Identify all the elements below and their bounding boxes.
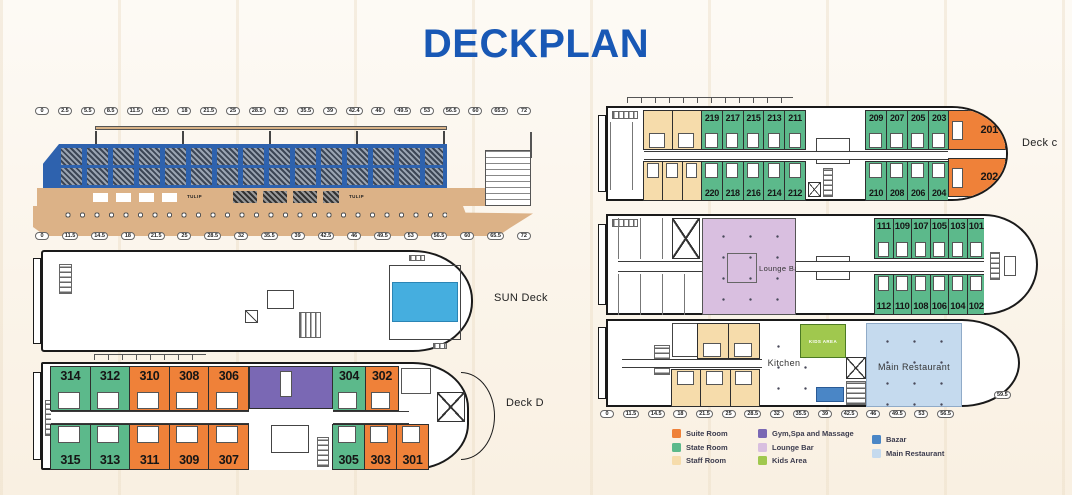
room-number: 218 — [723, 188, 743, 198]
scale-marker: 53 — [914, 410, 928, 418]
scale-marker: 53 — [420, 107, 434, 115]
room-number: 103 — [949, 221, 967, 232]
room-number: 105 — [931, 221, 949, 232]
room-313: 313 — [90, 424, 131, 470]
legend-item: Suite Room — [672, 427, 758, 441]
room-310: 310 — [129, 366, 170, 411]
deck-b-outline: Lounge Bar 111109107105103101 1121101081… — [606, 214, 984, 315]
room-303: 303 — [364, 424, 397, 470]
room-110: 110 — [893, 274, 913, 315]
stairs-icon — [846, 381, 866, 405]
elevator-icon — [846, 357, 866, 379]
window-row — [61, 168, 443, 185]
scale-marker: 8.5 — [104, 107, 118, 115]
scale-marker: 46 — [371, 107, 385, 115]
room-304: 304 — [332, 366, 366, 411]
portholes — [61, 209, 447, 221]
scale-marker: 72 — [517, 232, 531, 240]
room-number: 101 — [968, 221, 986, 232]
page-title: DECKPLAN — [0, 22, 1072, 67]
room-staff — [643, 161, 663, 201]
scale-marker: 39 — [291, 232, 305, 240]
scale-marker: 60 — [468, 107, 482, 115]
room-staff — [730, 369, 760, 407]
room-number: 302 — [366, 369, 398, 383]
lounge-bar-area: Lounge Bar — [702, 218, 796, 315]
deck-windows — [93, 193, 183, 202]
deck-d-label: Deck D — [506, 397, 544, 409]
scale-marker: 11.5 — [127, 107, 143, 115]
lifeboat-icon — [612, 111, 638, 119]
deck-c-plan: 219217215213211 209207205203 22021821621… — [598, 106, 1018, 201]
ship-side-view: 02.55.58.511.514.51821.52528.53235.53942… — [33, 106, 533, 240]
deck-a-scale: 011.514.51821.52528.53235.53942.54649.55… — [600, 409, 954, 418]
ladder-icon — [990, 252, 1000, 280]
room-205: 205 — [907, 110, 929, 150]
room-number: 209 — [866, 113, 886, 123]
room-number: 305 — [333, 453, 364, 467]
stairs-icon — [299, 312, 321, 338]
legend-swatch — [672, 429, 681, 438]
scale-marker: 21.5 — [200, 107, 217, 115]
ship-brand: TULIP — [187, 194, 202, 199]
deck-d-plan: 314312310308306 304302 315313311309307 3… — [33, 362, 513, 470]
wardrobe-room — [672, 323, 698, 357]
deck-b-plan: Lounge Bar 111109107105103101 1121101081… — [598, 214, 1040, 315]
deck-box — [267, 290, 294, 309]
deck-c-label: Deck c — [1022, 137, 1057, 149]
crew-rooms — [610, 122, 642, 190]
room-306: 306 — [208, 366, 249, 411]
legend-swatch — [758, 429, 767, 438]
room-107: 107 — [911, 218, 931, 259]
room-number: 308 — [170, 369, 209, 383]
room-210: 210 — [865, 161, 887, 201]
sun-deck-plan — [33, 250, 493, 352]
deckplan-page: DECKPLAN 02.55.58.511.514.51821.52528.53… — [0, 0, 1072, 495]
deck-a-outline: Kitchen KIDS AREA Main Restaurant — [606, 319, 962, 407]
elevator-icon — [808, 182, 821, 197]
scale-marker: 25 — [177, 232, 191, 240]
canopy-posts — [95, 131, 447, 144]
rooms-row: 219217215213211 — [702, 110, 806, 150]
room-number: 102 — [968, 301, 986, 312]
dance-floor — [727, 253, 757, 283]
canopy-roof — [95, 126, 447, 130]
bow-superstructure — [485, 150, 531, 206]
legend-item: Main Restaurant — [872, 447, 958, 461]
scale-marker: 14.5 — [91, 232, 108, 240]
rooms-row — [698, 323, 760, 359]
legend-label: Gym,Spa and Massage — [772, 429, 854, 438]
stairs-icon — [823, 168, 833, 197]
gym-spa-area — [249, 366, 333, 409]
legend-item: Staff Room — [672, 454, 758, 468]
deck-d-outline: 314312310308306 304302 315313311309307 3… — [41, 362, 469, 470]
room-215: 215 — [743, 110, 765, 150]
rooms-row: 220218216214212 — [702, 161, 806, 201]
rooms-row: 112110108106104102 — [875, 274, 986, 315]
room-number: 204 — [929, 188, 949, 198]
legend-item: State Room — [672, 441, 758, 455]
kids-area: KIDS AREA — [800, 324, 846, 358]
room-206: 206 — [907, 161, 929, 201]
rooms-row — [644, 161, 702, 201]
scale-marker: 0 — [35, 232, 49, 240]
room-staff — [672, 110, 702, 150]
legend-label: Staff Room — [686, 456, 726, 465]
scale-marker: 56.5 — [937, 410, 954, 418]
bow-cabin — [401, 368, 431, 394]
room-212: 212 — [784, 161, 806, 201]
room-302: 302 — [365, 366, 399, 411]
corridor — [333, 411, 409, 424]
scale-marker: 39 — [818, 410, 832, 418]
room-219: 219 — [701, 110, 723, 150]
room-208: 208 — [886, 161, 908, 201]
hatch-box-icon — [245, 310, 258, 323]
corridor — [796, 261, 986, 272]
legend-swatch — [672, 456, 681, 465]
room-number: 213 — [764, 113, 784, 123]
room-number: 112 — [875, 301, 893, 312]
room-109: 109 — [893, 218, 913, 259]
room-108: 108 — [911, 274, 931, 315]
scale-marker: 25 — [226, 107, 240, 115]
room-301: 301 — [396, 424, 429, 470]
scale-marker: 53 — [404, 232, 418, 240]
scale-marker: 46 — [347, 232, 361, 240]
room-216: 216 — [743, 161, 765, 201]
bow-section — [962, 319, 1020, 407]
rooms-row: 305303301 — [333, 424, 429, 470]
room-312: 312 — [90, 366, 131, 411]
room-number: 310 — [130, 369, 169, 383]
legend-label: State Room — [686, 443, 728, 452]
deck-c-ruler — [627, 97, 793, 103]
room-number: 314 — [51, 369, 90, 383]
corridor — [618, 261, 702, 272]
room-number: 203 — [929, 113, 949, 123]
legend-label: Suite Room — [686, 429, 728, 438]
room-number: 211 — [785, 113, 805, 123]
scale-marker: 35.5 — [261, 232, 278, 240]
sun-deck-label: SUN Deck — [494, 292, 548, 304]
room-number: 214 — [764, 188, 784, 198]
deck-a-plan: Kitchen KIDS AREA Main Restaurant 59.5 — [598, 319, 1028, 407]
lifeboat-icon — [59, 264, 72, 294]
corridor — [622, 359, 762, 368]
room-number: 309 — [170, 453, 209, 467]
stern-platform — [598, 115, 606, 192]
legend-item: Bazar — [872, 433, 958, 447]
legend-swatch — [672, 443, 681, 452]
scale-marker: 49.5 — [374, 232, 391, 240]
room-103: 103 — [948, 218, 968, 259]
room-106: 106 — [930, 274, 950, 315]
room-number: 106 — [931, 301, 949, 312]
room-number: 109 — [894, 221, 912, 232]
scale-marker: 2.5 — [58, 107, 72, 115]
vent-icon — [409, 255, 425, 261]
room-number: 110 — [894, 301, 912, 312]
scale-marker: 49.5 — [889, 410, 906, 418]
room-number: 205 — [908, 113, 928, 123]
pool-structure — [389, 265, 461, 340]
stairwell-icon — [672, 218, 700, 259]
scale-marker: 11.5 — [623, 410, 639, 418]
scale-marker: 21.5 — [696, 410, 713, 418]
kids-area-label: KIDS AREA — [801, 339, 845, 344]
stern-platform — [598, 327, 606, 399]
room-201: 201 — [948, 110, 1006, 150]
room-number: 107 — [912, 221, 930, 232]
room-218: 218 — [722, 161, 744, 201]
scale-marker: 14.5 — [152, 107, 169, 115]
room-104: 104 — [948, 274, 968, 315]
room-number: 219 — [702, 113, 722, 123]
legend-swatch — [758, 443, 767, 452]
room-number: 104 — [949, 301, 967, 312]
rooms-row: 314312310308306 — [51, 366, 249, 411]
room-209: 209 — [865, 110, 887, 150]
scale-marker: 25 — [722, 410, 736, 418]
room-202: 202 — [948, 158, 1006, 198]
room-number: 207 — [887, 113, 907, 123]
rooms-row: 111109107105103101 — [875, 218, 986, 259]
room-203: 203 — [928, 110, 950, 150]
room-315: 315 — [50, 424, 91, 470]
stern-platform — [33, 258, 41, 344]
room-217: 217 — [722, 110, 744, 150]
crew-rooms — [618, 274, 702, 315]
room-staff — [697, 323, 729, 359]
legend-label: Main Restaurant — [886, 449, 944, 458]
room-220: 220 — [701, 161, 723, 201]
room-number: 216 — [744, 188, 764, 198]
room-number: 220 — [702, 188, 722, 198]
deck-c-outline: 219217215213211 209207205203 22021821621… — [606, 106, 948, 201]
main-restaurant-label: Main Restaurant — [867, 362, 961, 372]
legend-item: Gym,Spa and Massage — [758, 427, 872, 441]
legend-label: Lounge Bar — [772, 443, 814, 452]
scale-marker: 18 — [673, 410, 687, 418]
room-number: 307 — [209, 453, 248, 467]
scale-marker: 14.5 — [648, 410, 665, 418]
mast — [530, 132, 532, 158]
room-307: 307 — [208, 424, 249, 470]
room-number: 311 — [130, 453, 169, 467]
kitchen-label: Kitchen — [752, 358, 816, 368]
scale-marker: 18 — [121, 232, 135, 240]
scale-marker: 49.5 — [394, 107, 411, 115]
scale-marker: 0 — [35, 107, 49, 115]
room-112: 112 — [874, 274, 894, 315]
open-lobby-area — [249, 409, 333, 470]
rooms-row: 315313311309307 — [51, 424, 249, 470]
scale-marker: 28.5 — [249, 107, 266, 115]
rooms-row: 210208206204 — [866, 161, 950, 201]
scale-marker: 28.5 — [744, 410, 761, 418]
room-105: 105 — [930, 218, 950, 259]
room-314: 314 — [50, 366, 91, 411]
sun-deck-outline — [41, 250, 473, 352]
gym-partition — [280, 371, 292, 397]
room-staff — [728, 323, 760, 359]
room-number: 217 — [723, 113, 743, 123]
room-number: 108 — [912, 301, 930, 312]
scale-marker: 18 — [177, 107, 191, 115]
rooms-row: 209207205203 — [866, 110, 950, 150]
room-number: 306 — [209, 369, 248, 383]
scale-marker: 72 — [517, 107, 531, 115]
stairs-icon — [317, 437, 329, 467]
room-number: 315 — [51, 453, 90, 467]
side-view-bottom-scale: 011.514.51821.52528.53235.53942.54649.55… — [35, 231, 531, 240]
room-number: 111 — [875, 221, 893, 232]
window-row — [61, 148, 443, 165]
bow-section — [984, 214, 1038, 315]
upper-decks-windows — [43, 144, 447, 188]
room-number: 215 — [744, 113, 764, 123]
room-number: 210 — [866, 188, 886, 198]
deck-windows-hatched — [233, 191, 339, 203]
scale-marker: 32 — [274, 107, 288, 115]
room-number: 301 — [397, 453, 428, 467]
room-number: 303 — [365, 453, 396, 467]
corridor — [644, 151, 950, 160]
scale-marker: 42.4 — [346, 107, 363, 115]
scale-marker: 60 — [460, 232, 474, 240]
main-restaurant-area: Main Restaurant — [866, 323, 962, 407]
legend-label: Kids Area — [772, 456, 807, 465]
scale-marker: 21.5 — [148, 232, 165, 240]
elevator-icon — [437, 392, 465, 422]
room-staff — [682, 161, 702, 201]
room-305: 305 — [332, 424, 365, 470]
table-icon — [271, 425, 309, 453]
bow-section: 201202 — [948, 106, 1008, 201]
room-207: 207 — [886, 110, 908, 150]
rooms-row — [672, 369, 760, 407]
legend-swatch — [758, 456, 767, 465]
room-111: 111 — [874, 218, 894, 259]
room-number: 206 — [908, 188, 928, 198]
room-number: 304 — [333, 369, 365, 383]
room-number: 208 — [887, 188, 907, 198]
legend-column: Suite RoomState RoomStaff Room — [672, 427, 758, 468]
scale-marker: 56.5 — [431, 232, 448, 240]
swimming-pool — [392, 282, 458, 322]
legend-item: Kids Area — [758, 454, 872, 468]
room-number: 313 — [91, 453, 130, 467]
legend-column: BazarMain Restaurant — [872, 427, 958, 468]
stern-platform — [598, 224, 606, 305]
main-deck-strip: TULIP TULIP — [37, 188, 485, 206]
scale-marker: 28.5 — [204, 232, 221, 240]
room-311: 311 — [129, 424, 170, 470]
ship-brand: TULIP — [349, 194, 364, 199]
room-number: 212 — [785, 188, 805, 198]
scale-marker: 32 — [234, 232, 248, 240]
room-308: 308 — [169, 366, 210, 411]
scale-marker: 11.5 — [62, 232, 78, 240]
scale-marker: 35.5 — [297, 107, 314, 115]
bow-suites: 201202 — [948, 108, 1006, 199]
side-view-top-scale: 02.55.58.511.514.51821.52528.53235.53942… — [35, 106, 531, 115]
scale-marker: 42.5 — [318, 232, 335, 240]
legend: Suite RoomState RoomStaff RoomGym,Spa an… — [672, 427, 958, 468]
room-number: 201 — [981, 124, 998, 136]
room-number: 312 — [91, 369, 130, 383]
scale-marker: 56.5 — [443, 107, 460, 115]
legend-item: Lounge Bar — [758, 441, 872, 455]
legend-swatch — [872, 449, 881, 458]
rooms-row: 304302 — [333, 366, 399, 411]
rooms-row — [644, 110, 702, 150]
scale-marker: 39 — [323, 107, 337, 115]
scale-marker: 65.5 — [487, 232, 504, 240]
legend-swatch — [872, 435, 881, 444]
scale-marker: 32 — [770, 410, 784, 418]
room-staff — [643, 110, 673, 150]
room-213: 213 — [763, 110, 785, 150]
room-staff — [662, 161, 682, 201]
scale-marker: 42.5 — [841, 410, 858, 418]
legend-label: Bazar — [886, 435, 906, 444]
scale-marker: 65.5 — [491, 107, 508, 115]
room-number: 202 — [981, 171, 998, 183]
scale-marker: 35.5 — [793, 410, 810, 418]
room-211: 211 — [784, 110, 806, 150]
room-214: 214 — [763, 161, 785, 201]
corridor — [51, 411, 249, 424]
scale-marker: 0 — [600, 410, 614, 418]
scale-marker: 46 — [866, 410, 880, 418]
stern-platform — [33, 372, 41, 460]
room-309: 309 — [169, 424, 210, 470]
room-staff — [700, 369, 730, 407]
room-204: 204 — [928, 161, 950, 201]
winch-icon — [433, 343, 447, 349]
scale-marker: 5.5 — [81, 107, 95, 115]
bow-marker: 59.5 — [994, 391, 1011, 399]
anchor-box — [1004, 256, 1016, 276]
scale-bar — [94, 354, 206, 360]
legend-column: Gym,Spa and MassageLounge BarKids Area — [758, 427, 872, 468]
room-staff — [671, 369, 701, 407]
bazar-area — [816, 387, 844, 402]
